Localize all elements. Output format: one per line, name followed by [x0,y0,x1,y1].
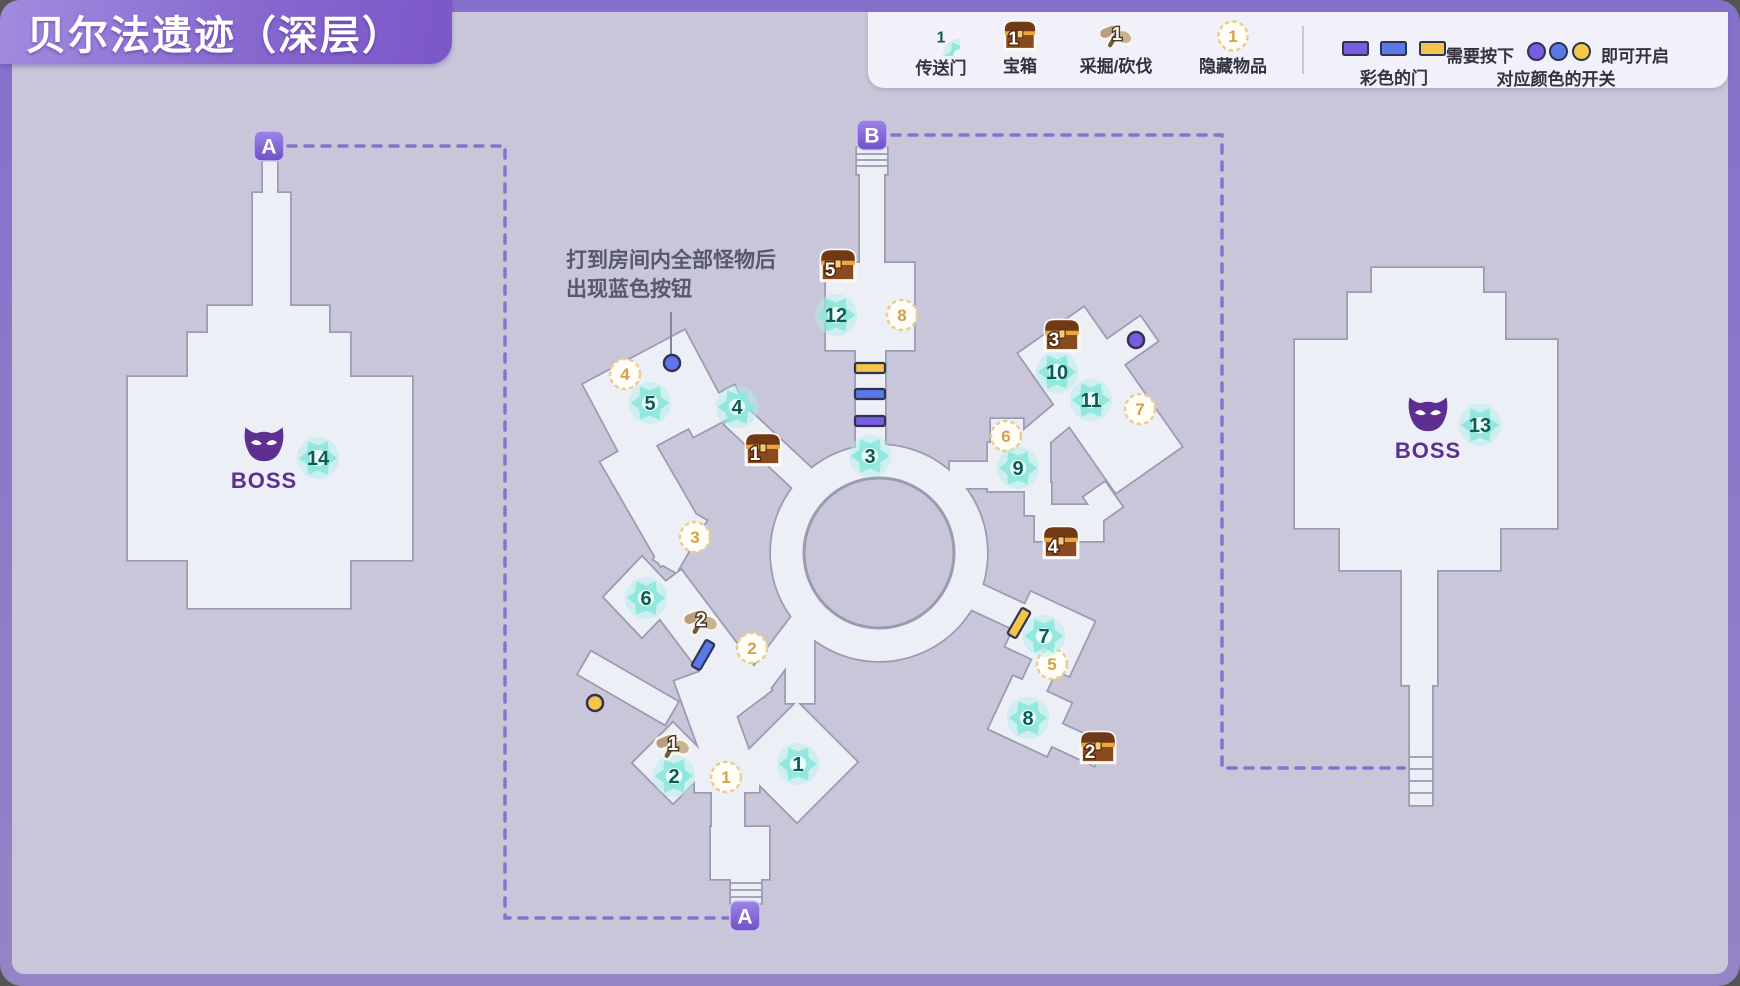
teleport-portal-marker-7: 7 [1023,615,1065,657]
svg-text:12: 12 [825,305,847,327]
teleport-portal-icon: 1 [922,18,960,56]
svg-text:4: 4 [731,397,743,419]
page-title: 贝尔法遗迹（深层） [26,3,404,61]
gather-hammer-icon: 1 [1096,18,1136,54]
door-yellow [855,363,885,373]
legend-label-hidden: 隐藏物品 [1190,52,1276,77]
svg-text:11: 11 [1080,390,1101,412]
svg-text:1: 1 [792,754,803,776]
legend-divider [1302,26,1304,74]
svg-text:1: 1 [1228,27,1237,46]
svg-text:2: 2 [668,766,679,788]
hidden-item-marker-7: 7 [1125,394,1155,424]
blue-button-annotation: 打到房间内全部怪物后 出现蓝色按钮 [566,246,776,304]
chest-marker-3: 3 [1045,320,1079,351]
legend-item-chest: 1 宝箱 [977,18,1063,77]
chest-marker-1: 1 [746,434,780,465]
svg-text:1: 1 [668,734,679,755]
teleport-portal-marker-5: 5 [629,382,671,424]
door-purple [855,416,885,426]
svg-text:BOSS: BOSS [1395,438,1461,463]
teleport-portal-marker-10: 10 [1036,351,1078,393]
chest-icon: 1 [1000,18,1040,54]
ring-inner-hole [804,478,954,628]
chest-marker-2: 2 [1081,732,1115,763]
legend-label-teleport: 传送门 [898,54,984,79]
svg-text:1: 1 [1112,24,1122,44]
svg-text:A: A [737,906,752,929]
svg-text:4: 4 [1048,537,1059,558]
svg-text:5: 5 [1047,655,1056,674]
map-title-banner: 贝尔法遗迹（深层） [0,0,452,64]
teleport-portal-marker-9: 9 [997,447,1039,489]
legend-panel: 1 传送门 1 宝箱 1 采掘/砍伐 1 隐藏物品 [868,12,1728,88]
hidden-item-marker-1: 1 [711,762,741,792]
svg-text:5: 5 [644,393,655,415]
teleport-portal-marker-2: 2 [653,755,695,797]
svg-text:A: A [261,136,276,159]
teleport-portal-marker-8: 8 [1007,697,1049,739]
legend-text-press: 需要按下 [1446,42,1514,67]
svg-text:1: 1 [750,444,761,465]
teleport-portal-marker-1: 1 [777,743,819,785]
svg-text:6: 6 [1001,427,1010,446]
svg-text:1: 1 [721,768,730,787]
svg-text:3: 3 [1049,330,1060,351]
annotation-line2: 出现蓝色按钮 [566,278,692,301]
hidden-item-marker-8: 8 [887,300,917,330]
teleport-portal-marker-6: 6 [625,577,667,619]
teleport-portal-marker-11: 11 [1070,379,1112,421]
legend-switch-yellow [1572,42,1591,61]
teleport-portal-marker-14: 14 [297,437,339,479]
ruins-map: 1234567812345678910111213141234512BOSSBO… [0,0,1740,986]
svg-text:6: 6 [640,588,651,610]
teleport-portal-marker-12: 12 [815,294,857,336]
route-marker-a: A [730,901,760,931]
teleport-portal-marker-4: 4 [716,386,758,428]
map-guide-screen: 1234567812345678910111213141234512BOSSBO… [0,0,1740,986]
route-marker-b: B [857,120,887,150]
button-blue [664,355,680,371]
chest-marker-5: 5 [821,250,855,281]
legend-label-gather: 采掘/砍伐 [1073,52,1159,77]
hidden-item-marker-2: 2 [737,633,767,663]
legend-door-blue [1380,41,1407,56]
legend-text-switch: 对应颜色的开关 [1486,65,1626,90]
legend-label-chest: 宝箱 [977,52,1063,77]
svg-text:13: 13 [1469,415,1491,437]
svg-text:8: 8 [897,306,906,325]
legend-item-gather: 1 采掘/砍伐 [1073,18,1159,77]
svg-text:B: B [864,125,879,148]
svg-text:1: 1 [937,30,946,47]
button-purple [1128,332,1144,348]
svg-text:7: 7 [1135,400,1144,419]
svg-text:14: 14 [307,448,330,470]
legend-switch-blue [1549,42,1568,61]
svg-text:1: 1 [1008,29,1018,49]
legend-door-purple [1342,41,1369,56]
chest-marker-4: 4 [1044,527,1078,558]
svg-text:2: 2 [747,639,756,658]
svg-text:9: 9 [1012,458,1023,480]
svg-text:10: 10 [1046,362,1068,384]
svg-text:7: 7 [1038,626,1049,648]
svg-text:8: 8 [1022,708,1033,730]
door-blue [855,389,885,399]
svg-text:4: 4 [620,365,630,384]
svg-text:2: 2 [696,610,707,631]
hidden-item-icon: 1 [1214,18,1252,54]
legend-item-teleport: 1 传送门 [898,18,984,79]
svg-text:3: 3 [690,528,699,547]
annotation-line1: 打到房间内全部怪物后 [566,249,776,272]
legend-label-doors: 彩色的门 [1334,64,1454,89]
legend-item-hidden: 1 隐藏物品 [1190,18,1276,77]
legend-door-yellow [1419,41,1446,56]
teleport-portal-marker-3: 3 [849,435,891,477]
legend-text-open: 即可开启 [1601,42,1669,67]
hidden-item-marker-6: 6 [991,421,1021,451]
hidden-item-marker-3: 3 [680,522,710,552]
svg-text:2: 2 [1085,742,1096,763]
route-marker-a: A [254,131,284,161]
button-yellow [587,695,603,711]
teleport-portal-marker-13: 13 [1459,404,1501,446]
svg-text:BOSS: BOSS [231,468,297,493]
svg-text:5: 5 [825,260,836,281]
svg-text:3: 3 [864,446,875,468]
hidden-item-marker-4: 4 [610,359,640,389]
legend-switch-purple [1527,42,1546,61]
